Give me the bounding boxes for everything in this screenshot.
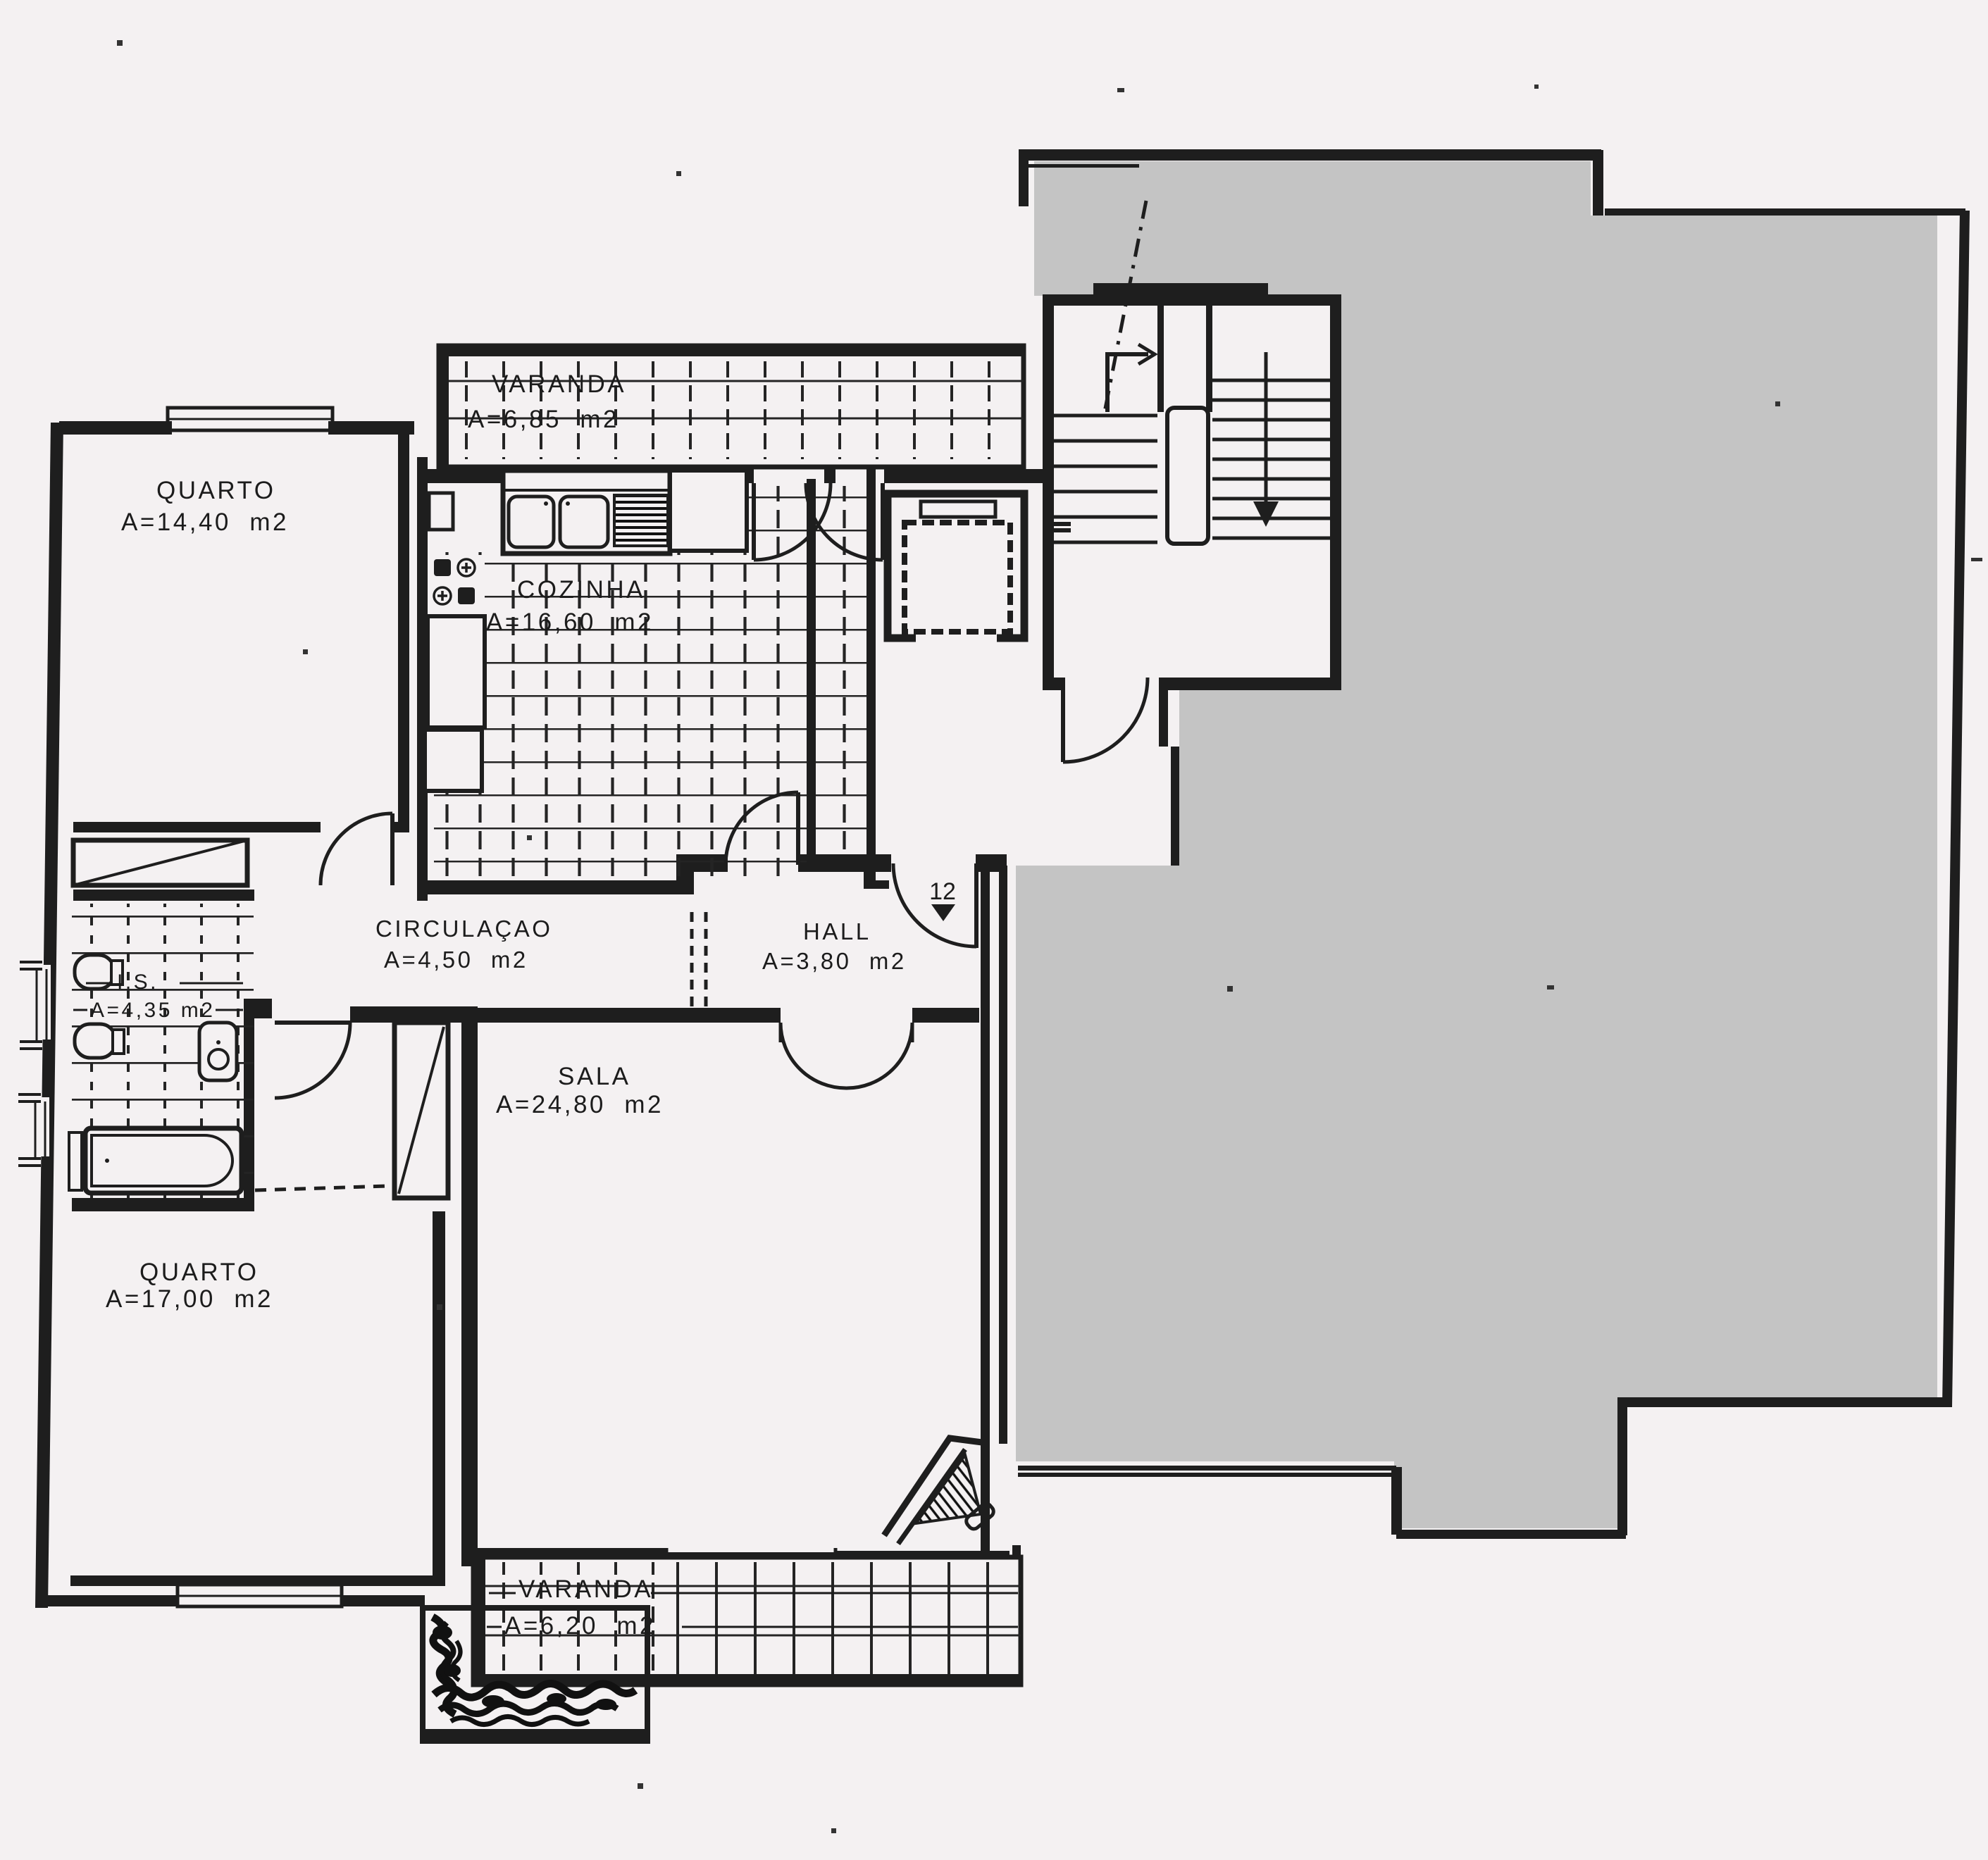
svg-text:HALL: HALL [803, 918, 871, 944]
svg-text:COZINHA: COZINHA [517, 576, 645, 604]
svg-text:VARANDA: VARANDA [518, 1575, 653, 1603]
svg-text:QUARTO: QUARTO [139, 1259, 259, 1286]
svg-text:A=3,80 m2: A=3,80 m2 [762, 948, 907, 974]
svg-text:VARANDA: VARANDA [492, 370, 626, 398]
svg-text:A=24,80 m2: A=24,80 m2 [496, 1091, 664, 1118]
svg-text:A=4,35 m2: A=4,35 m2 [90, 999, 215, 1022]
svg-text:I.S.: I.S. [117, 970, 159, 994]
svg-text:A=6,85 m2: A=6,85 m2 [468, 406, 619, 433]
svg-text:12: 12 [929, 878, 956, 905]
svg-text:A=17,00 m2: A=17,00 m2 [106, 1285, 273, 1313]
svg-text:SALA: SALA [558, 1063, 631, 1090]
svg-text:A=4,50 m2: A=4,50 m2 [384, 947, 528, 973]
svg-text:A=14,40 m2: A=14,40 m2 [121, 508, 289, 536]
svg-text:CIRCULAÇAO: CIRCULAÇAO [375, 916, 552, 942]
svg-text:QUARTO: QUARTO [156, 477, 275, 504]
svg-text:A=16,60 m2: A=16,60 m2 [486, 608, 654, 636]
svg-text:A=6,20 m2: A=6,20 m2 [504, 1612, 656, 1640]
